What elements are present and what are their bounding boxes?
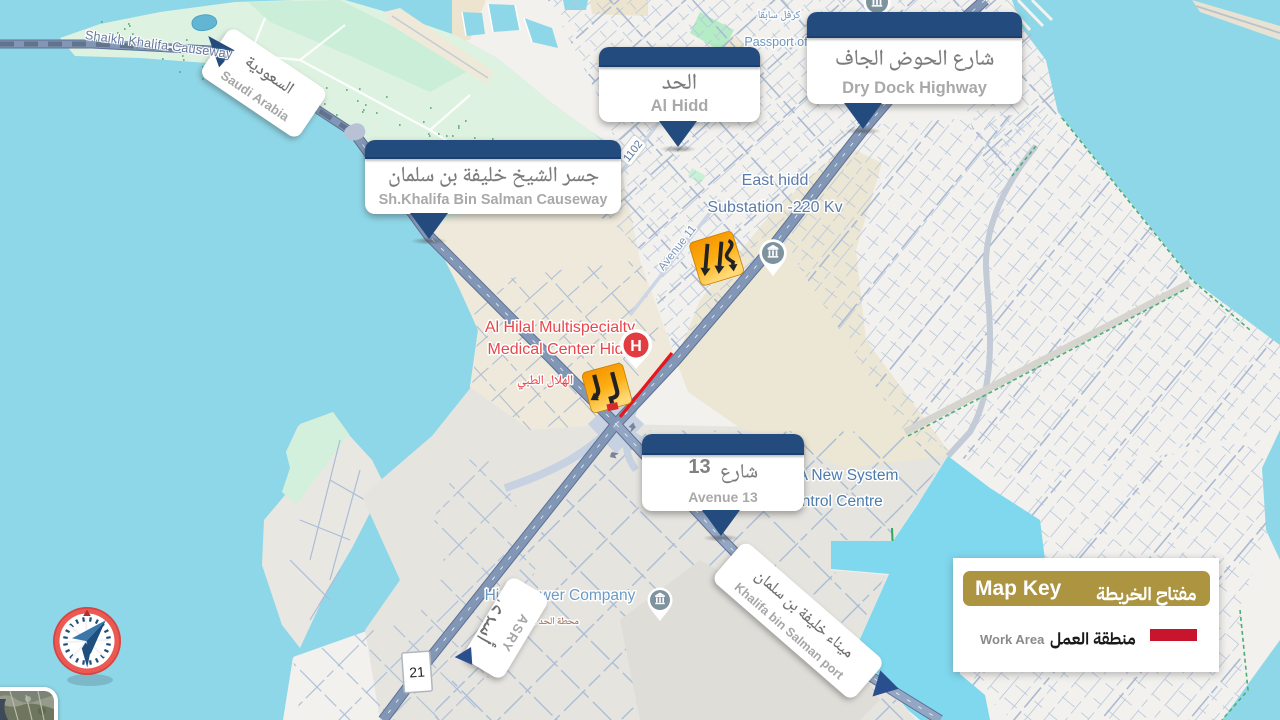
svg-text:Substation -220 Kv: Substation -220 Kv [707,199,842,216]
svg-text:21: 21 [409,663,426,680]
svg-text:Medical Center Hidd: Medical Center Hidd [488,341,633,358]
svg-text:H: H [630,338,642,355]
svg-text:Al Hilal Multispecialty: Al Hilal Multispecialty [485,319,635,336]
svg-text:A New System: A New System [798,467,899,484]
svg-text:East hidd: East hidd [742,172,809,189]
svg-text:ontrol Centre: ontrol Centre [793,493,883,510]
